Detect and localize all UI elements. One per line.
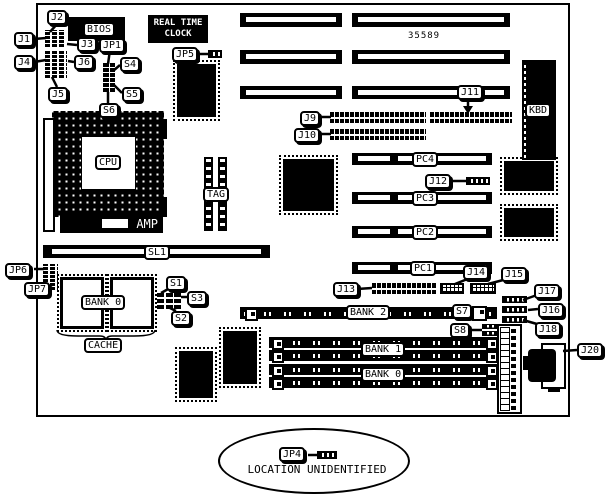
callout-j15: J15 (501, 267, 527, 282)
label-sl1: SL1 (144, 245, 170, 260)
callout-jp4: JP4 (279, 447, 305, 462)
callout-jp1: JP1 (99, 38, 125, 53)
callout-j2: J2 (47, 10, 67, 25)
pointer-lines (0, 0, 608, 495)
callout-j20: J20 (577, 343, 603, 358)
callout-j1: J1 (14, 32, 34, 47)
callout-s6: S6 (99, 103, 119, 118)
label-pc3: PC3 (412, 191, 438, 206)
label-pc1: PC1 (410, 261, 436, 276)
callout-s1: S1 (166, 276, 186, 291)
label-bank2: BANK 2 (346, 305, 390, 320)
callout-j10: J10 (294, 128, 320, 143)
callout-j11: J11 (457, 85, 483, 100)
callout-s7: S7 (452, 304, 472, 319)
label-pc2: PC2 (412, 225, 438, 240)
motherboard-diagram: 35589 AMP (0, 0, 608, 495)
label-bios: BIOS (83, 22, 115, 37)
callout-j12: J12 (425, 174, 451, 189)
callout-j16: J16 (538, 303, 564, 318)
label-bank1: BANK 1 (361, 342, 405, 357)
callout-j18: J18 (535, 322, 561, 337)
callout-s5: S5 (122, 87, 142, 102)
callout-jp6: JP6 (5, 263, 31, 278)
callout-j6: J6 (74, 55, 94, 70)
label-bank0-simm: BANK 0 (361, 367, 405, 382)
callout-s2: S2 (171, 311, 191, 326)
callout-j17: J17 (534, 284, 560, 299)
label-tag: TAG (203, 187, 229, 202)
callout-j3: J3 (77, 37, 97, 52)
label-cpu: CPU (95, 155, 121, 170)
callout-j13: J13 (333, 282, 359, 297)
callout-s4: S4 (120, 57, 140, 72)
callout-j14: J14 (463, 265, 489, 280)
label-cache: CACHE (84, 338, 122, 353)
callout-s3: S3 (187, 291, 207, 306)
label-kbd: KBD (525, 103, 551, 118)
callout-s8: S8 (450, 323, 470, 338)
callout-j4: J4 (14, 55, 34, 70)
callout-jp5: JP5 (172, 47, 198, 62)
callout-jp7: JP7 (24, 282, 50, 297)
callout-j5: J5 (48, 87, 68, 102)
label-pc4: PC4 (412, 152, 438, 167)
label-bank0-cache: BANK 0 (81, 295, 125, 310)
callout-j9: J9 (300, 111, 320, 126)
